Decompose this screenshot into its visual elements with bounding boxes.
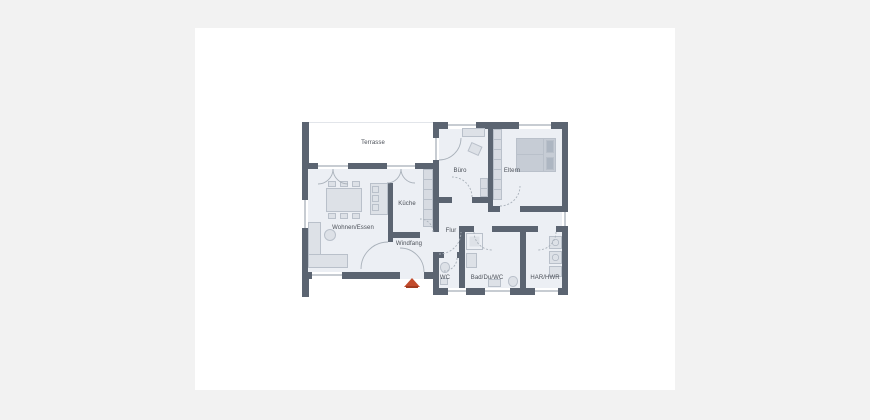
wall-segment xyxy=(433,288,448,295)
window xyxy=(433,138,439,160)
entrance-arrow-base xyxy=(406,286,418,288)
room-label-terrasse: Terrasse xyxy=(361,140,385,146)
wall-segment xyxy=(558,288,568,295)
floorplan-canvas: Terrasse Wohnen/Essen Küche Windfang Bür… xyxy=(195,28,675,390)
chair xyxy=(328,213,336,219)
pillow xyxy=(546,140,554,153)
door-opening xyxy=(433,232,439,254)
wall-segment xyxy=(348,163,387,169)
wall-segment xyxy=(556,226,562,232)
wall-segment xyxy=(433,122,439,138)
wall-segment xyxy=(302,272,312,279)
wall-segment xyxy=(302,163,308,200)
chair xyxy=(340,213,348,219)
room-label-bad: Bad/Du/WC xyxy=(471,275,504,281)
pillow xyxy=(546,157,554,170)
shower xyxy=(466,233,483,250)
wall-segment xyxy=(466,288,485,295)
wall-segment xyxy=(562,122,568,212)
room-label-buero: Büro xyxy=(453,168,466,174)
kitchen-tall-units xyxy=(423,169,433,227)
room-label-har: HAR/HWR xyxy=(530,275,559,281)
wall-segment xyxy=(492,226,538,232)
chair xyxy=(328,181,336,187)
desk xyxy=(462,128,485,137)
wall-segment xyxy=(433,252,444,258)
dryer xyxy=(549,251,562,264)
window xyxy=(485,288,510,295)
kitchen-sink xyxy=(372,186,379,193)
bed-divider-line xyxy=(517,154,544,155)
wall-segment xyxy=(510,288,535,295)
chair xyxy=(352,213,360,219)
kitchen-hob xyxy=(372,204,379,211)
wall-segment xyxy=(562,226,568,295)
wall-segment xyxy=(439,197,452,203)
wall-segment xyxy=(457,252,465,258)
bed-divider-line xyxy=(543,139,544,171)
sofa xyxy=(308,254,348,268)
wall-segment xyxy=(342,272,400,279)
room-label-flur: Flur xyxy=(446,228,457,234)
wall-segment xyxy=(393,232,420,238)
wall-segment xyxy=(472,197,488,203)
office-shelf xyxy=(480,178,488,197)
room-label-wohnen-essen: Wohnen/Essen xyxy=(332,225,374,231)
dining-table xyxy=(326,188,362,212)
wall-segment xyxy=(302,122,309,163)
room-label-eltern: Eltern xyxy=(504,168,520,174)
window xyxy=(448,288,466,295)
wall-segment xyxy=(520,232,526,288)
room-label-wc: WC xyxy=(440,275,450,281)
wall-segment xyxy=(520,206,562,212)
window xyxy=(519,122,551,129)
wall-segment xyxy=(493,206,500,212)
window xyxy=(562,212,568,226)
window xyxy=(535,288,558,295)
room-label-kueche: Küche xyxy=(398,201,416,207)
toilet xyxy=(440,262,450,273)
wall-segment xyxy=(433,160,439,232)
bathroom-cabinet xyxy=(466,253,477,268)
floor-plan: Terrasse Wohnen/Essen Küche Windfang Bür… xyxy=(300,120,570,298)
kitchen-appliance xyxy=(372,195,379,202)
window xyxy=(387,163,415,169)
room-label-windfang: Windfang xyxy=(396,241,422,247)
page-background: { "plan": { "type": "floor-plan", "rooms… xyxy=(0,0,870,420)
wardrobe xyxy=(493,129,502,200)
chair xyxy=(340,181,348,187)
washing-machine xyxy=(549,236,562,249)
toilet xyxy=(508,276,518,287)
window xyxy=(318,163,348,169)
window xyxy=(312,272,342,279)
chair xyxy=(352,181,360,187)
